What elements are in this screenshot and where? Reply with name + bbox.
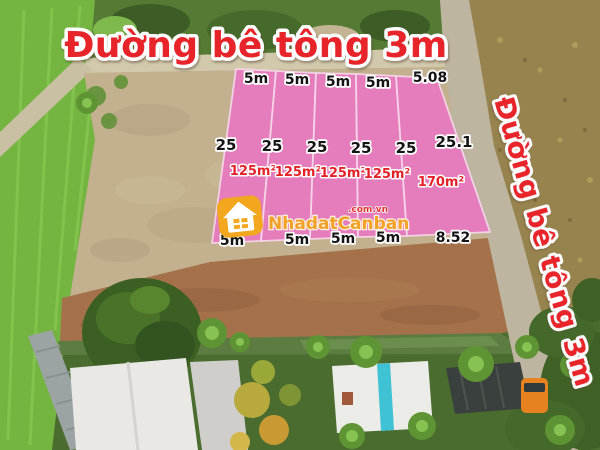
orange-truck xyxy=(521,378,548,413)
area-label: 170m² xyxy=(418,175,464,190)
top-dim-label: 5m xyxy=(326,74,350,90)
area-label: 125m² xyxy=(275,165,321,180)
top-dim-label: 5m xyxy=(285,72,309,88)
watermark-suffix: .com.vn xyxy=(348,205,388,215)
top-dim-label: 5m xyxy=(366,75,390,91)
brick-chimney xyxy=(342,392,353,405)
real-estate-ad: 5m 5m 5m 5m 5.08 25 25 25 25 25 25.1 125… xyxy=(0,0,600,450)
top-dim-label: 5m xyxy=(244,71,268,87)
top-road-name: Đường bê tông 3m xyxy=(64,25,448,66)
top-dim-label: 5.08 xyxy=(413,70,448,86)
side-dim-label: 25 xyxy=(351,139,372,157)
side-dim-label: 25 xyxy=(396,139,417,157)
area-label: 125m² xyxy=(364,167,410,182)
side-dim-label: 25.1 xyxy=(435,133,472,151)
bottom-dim-label: 8.52 xyxy=(436,230,471,246)
area-label: 125m² xyxy=(230,164,276,179)
bottom-dim-label: 5m xyxy=(285,232,309,248)
side-dim-label: 25 xyxy=(216,136,237,154)
side-dim-label: 25 xyxy=(307,138,328,156)
watermark-brand: NhadatCanban xyxy=(268,214,409,234)
area-label: 125m² xyxy=(320,166,366,181)
side-dim-label: 25 xyxy=(262,137,283,155)
house-icon xyxy=(216,194,264,238)
aerial-photo: 5m 5m 5m 5m 5.08 25 25 25 25 25 25.1 125… xyxy=(0,0,600,450)
